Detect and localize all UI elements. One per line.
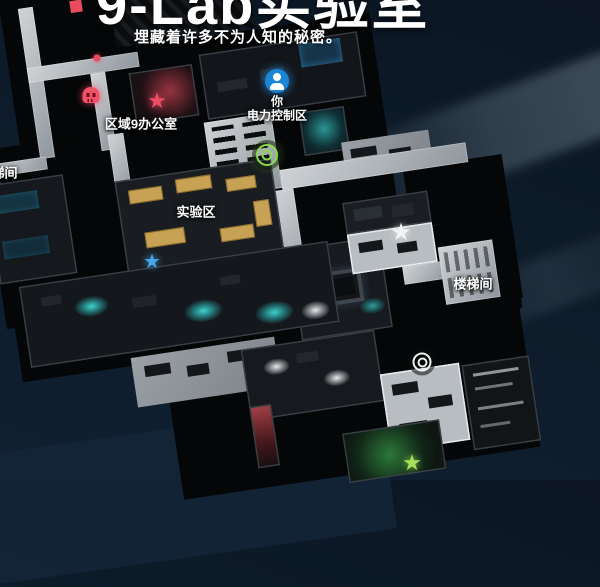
red-dot-icon xyxy=(94,55,101,62)
area9-office-label: 区域9办公室 xyxy=(105,114,177,133)
white-objective-bullseye[interactable] xyxy=(413,353,432,372)
player-marker[interactable] xyxy=(265,69,289,93)
bullseye-inner-ring xyxy=(262,150,273,161)
power-control-area-label: 电力控制区 xyxy=(247,107,307,124)
enemy-marker[interactable] xyxy=(83,87,100,103)
stairwell-left-label: 楼梯间 xyxy=(0,163,18,182)
page-subtitle: 埋藏着许多不为人知的秘密。 xyxy=(134,26,342,47)
bullseye-inner-ring xyxy=(417,357,427,367)
green-star-icon[interactable]: ★ xyxy=(402,453,422,475)
skull-icon xyxy=(83,87,100,103)
player-icon xyxy=(265,69,289,93)
blue-star-icon[interactable]: ★ xyxy=(143,251,161,271)
marker-overlay: 你 电力控制区 ★ ★ ★ ★ 区域9办公室 实验区 楼梯间 楼梯间 xyxy=(0,0,600,480)
red-dot-marker[interactable] xyxy=(94,55,101,62)
stairwell-right-label: 楼梯间 xyxy=(453,274,492,293)
lab-zone-label: 实验区 xyxy=(176,202,215,221)
red-star-icon[interactable]: ★ xyxy=(147,91,167,113)
white-star-icon[interactable]: ★ xyxy=(390,220,412,244)
green-objective-bullseye[interactable] xyxy=(256,144,278,166)
mission-briefing-screen: { "header": { "title": "9-Lab实验室", "subt… xyxy=(0,0,600,480)
